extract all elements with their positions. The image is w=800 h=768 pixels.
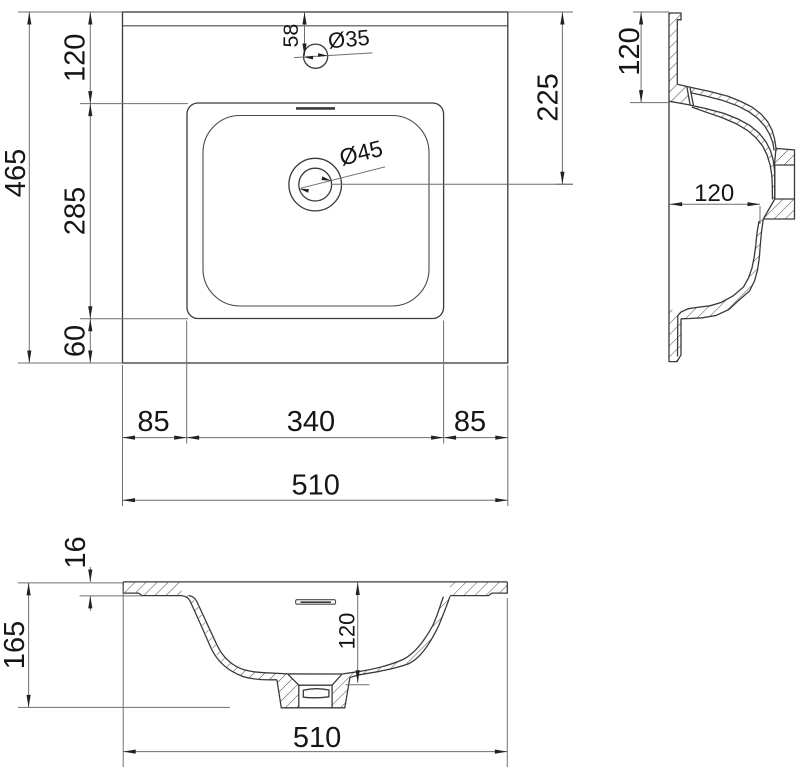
svg-text:510: 510 bbox=[292, 469, 340, 501]
svg-text:165: 165 bbox=[0, 621, 31, 669]
svg-text:85: 85 bbox=[137, 406, 169, 438]
svg-text:Ø35: Ø35 bbox=[327, 25, 371, 54]
svg-text:285: 285 bbox=[60, 187, 92, 235]
svg-text:16: 16 bbox=[60, 536, 92, 568]
svg-text:465: 465 bbox=[0, 149, 32, 197]
svg-text:120: 120 bbox=[694, 180, 734, 207]
svg-text:85: 85 bbox=[454, 406, 486, 438]
svg-text:120: 120 bbox=[60, 34, 92, 82]
svg-text:120: 120 bbox=[335, 613, 360, 650]
svg-text:510: 510 bbox=[293, 722, 341, 754]
svg-text:120: 120 bbox=[614, 27, 646, 75]
svg-text:340: 340 bbox=[287, 406, 335, 438]
svg-text:60: 60 bbox=[60, 325, 92, 357]
svg-text:225: 225 bbox=[532, 73, 564, 121]
svg-text:58: 58 bbox=[279, 24, 303, 48]
